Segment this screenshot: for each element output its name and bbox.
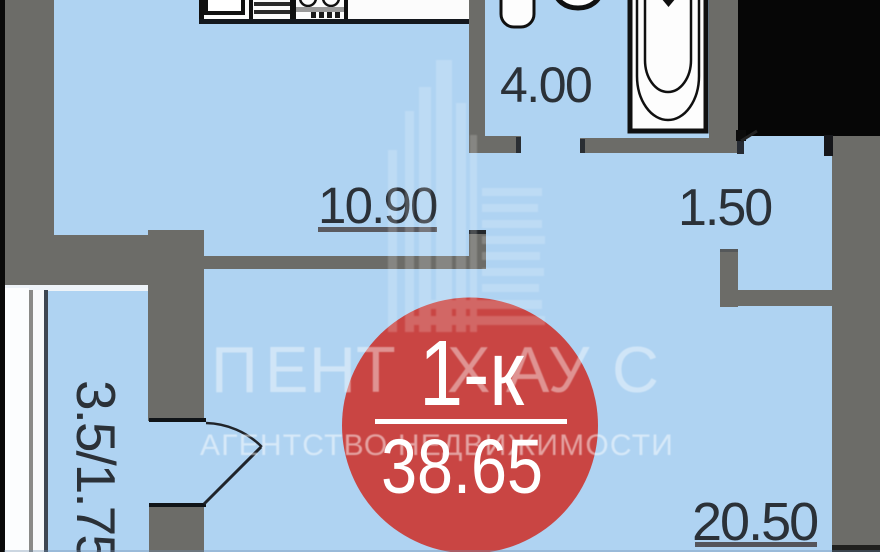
svg-text:4.00: 4.00 xyxy=(500,57,591,113)
svg-text:1.50: 1.50 xyxy=(678,179,771,237)
svg-text:АГЕНТСТВО НЕДВИЖИМОСТИ: АГЕНТСТВО НЕДВИЖИМОСТИ xyxy=(200,429,674,462)
svg-text:3.5/1.75: 3.5/1.75 xyxy=(65,380,127,552)
